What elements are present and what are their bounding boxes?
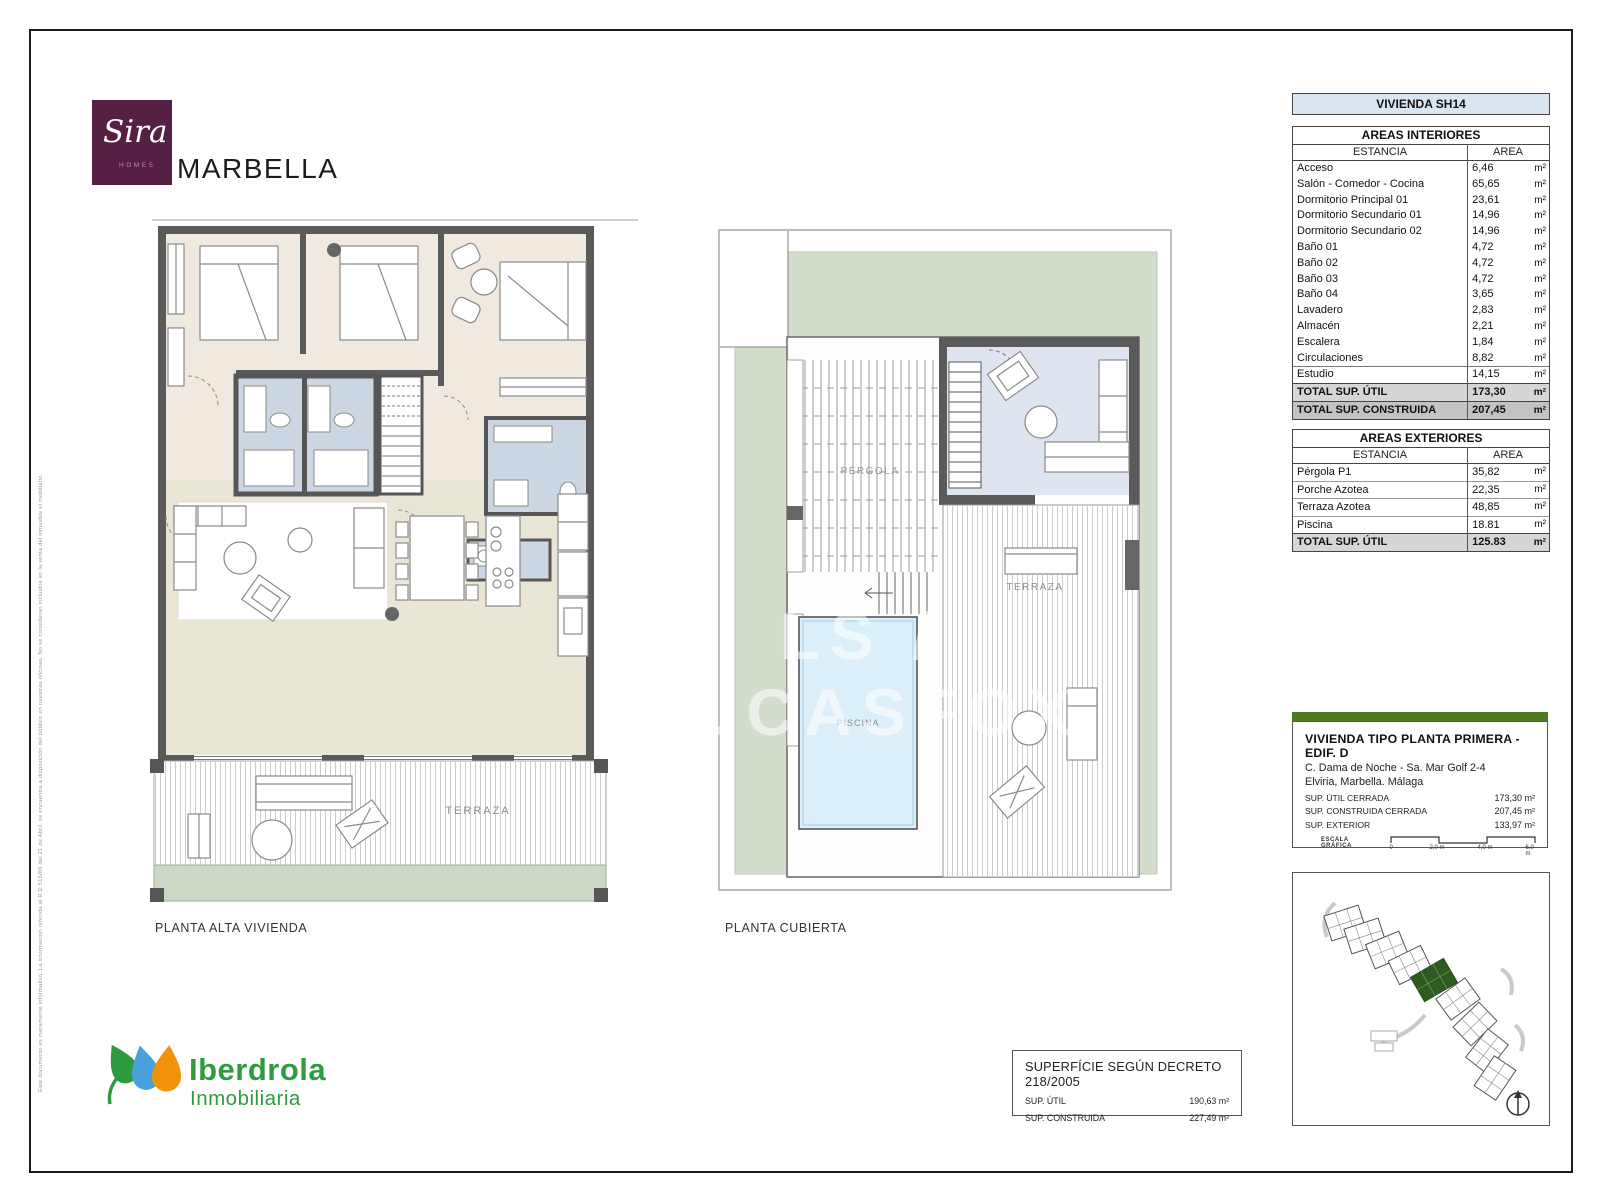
room-area: 4,72 <box>1467 272 1516 288</box>
decreto-row: SUP. ÚTIL 190,63 m² <box>1025 1096 1229 1106</box>
room-unit: m² <box>1516 256 1549 272</box>
table-row: Baño 03 4,72 m² <box>1293 272 1549 288</box>
table-header: ESTANCIA AREA <box>1293 145 1549 161</box>
scale-bar: 0 2,0 m 4,0 m 6,0 m <box>1387 835 1535 853</box>
room-area: 14,15 <box>1467 367 1516 383</box>
room-area: 14,96 <box>1467 208 1516 224</box>
decreto-box: SUPERFÍCIE SEGÚN DECRETO 218/2005 SUP. Ú… <box>1012 1050 1242 1116</box>
col-estancia: ESTANCIA <box>1293 145 1467 160</box>
room-name: Pérgola P1 <box>1293 464 1467 481</box>
table-row: Terraza Azotea 48,85 m² <box>1293 499 1549 517</box>
room-name: Dormitorio Secundario 02 <box>1293 224 1467 240</box>
right-plan-label: PLANTA CUBIERTA <box>725 921 847 935</box>
table-row: Baño 01 4,72 m² <box>1293 240 1549 256</box>
room-area: 2,21 <box>1467 319 1516 335</box>
total-construida-row: TOTAL SUP. CONSTRUIDA 207,45 m² <box>1293 401 1549 419</box>
iberdrola-name: Iberdrola <box>189 1052 326 1087</box>
room-unit: m² <box>1516 335 1549 351</box>
room-name: Dormitorio Secundario 01 <box>1293 208 1467 224</box>
room-name: Dormitorio Principal 01 <box>1293 193 1467 209</box>
room-name: Terraza Azotea <box>1293 499 1467 516</box>
info-title: VIVIENDA TIPO PLANTA PRIMERA - EDIF. D <box>1305 732 1535 760</box>
room-name: Baño 01 <box>1293 240 1467 256</box>
left-plan-label: PLANTA ALTA VIVIENDA <box>155 921 307 935</box>
floor-plan-planta-alta: TERRAZA <box>148 210 642 910</box>
room-unit: m² <box>1516 351 1549 367</box>
table-row: Salón - Comedor - Cocina 65,65 m² <box>1293 177 1549 193</box>
sira-logo-script: Sira <box>103 114 167 150</box>
total-util-row: TOTAL SUP. ÚTIL 125.83 m² <box>1293 533 1549 551</box>
room-name: Piscina <box>1293 517 1467 534</box>
room-area: 8,82 <box>1467 351 1516 367</box>
table-row: Lavadero 2,83 m² <box>1293 303 1549 319</box>
table-title: AREAS EXTERIORES <box>1293 430 1549 448</box>
room-area: 23,61 <box>1467 193 1516 209</box>
pergola: PÉRGOLA <box>801 360 939 572</box>
sira-logo-sub: HOMES <box>119 162 155 169</box>
table-row: Escalera 1,84 m² <box>1293 335 1549 351</box>
room-area: 35,82 <box>1467 464 1516 481</box>
room-area: 48,85 <box>1467 499 1516 516</box>
room-area: 6,46 <box>1467 161 1516 177</box>
room-unit: m² <box>1516 177 1549 193</box>
info-row: SUP. ÚTIL CERRADA 173,30 m² <box>1305 793 1535 803</box>
table-body: Acceso 6,46 m² Salón - Comedor - Cocina … <box>1293 161 1549 383</box>
room-unit: m² <box>1516 482 1549 499</box>
room-name: Lavadero <box>1293 303 1467 319</box>
window-glazing <box>194 755 572 761</box>
pergola-label: PÉRGOLA <box>841 464 900 477</box>
pool: PISCINA <box>799 617 917 829</box>
room-name: Porche Azotea <box>1293 482 1467 499</box>
room-unit: m² <box>1516 319 1549 335</box>
studio <box>939 337 1139 505</box>
sira-homes-logo: Sira HOMES <box>92 100 172 185</box>
room-unit: m² <box>1516 272 1549 288</box>
room-name: Baño 02 <box>1293 256 1467 272</box>
table-row: Porche Azotea 22,35 m² <box>1293 482 1549 500</box>
roof-terrace: TERRAZA <box>943 505 1139 877</box>
room-name: Baño 04 <box>1293 287 1467 303</box>
roof-terrace-label: TERRAZA <box>1006 582 1063 593</box>
info-row: SUP. EXTERIOR 133,97 m² <box>1305 820 1535 830</box>
site-buildings <box>1324 905 1516 1100</box>
room-unit: m² <box>1516 287 1549 303</box>
decreto-row: SUP. CONSTRUIDA 227,49 m² <box>1025 1113 1229 1123</box>
iberdrola-division: Inmobiliaria <box>190 1087 301 1110</box>
table-header: ESTANCIA AREA <box>1293 448 1549 464</box>
room-unit: m² <box>1516 367 1549 383</box>
table-title: AREAS INTERIORES <box>1293 127 1549 145</box>
site-plan-box <box>1292 872 1550 1126</box>
column-dot <box>327 243 341 257</box>
iberdrola-logo: Iberdrola Inmobiliaria <box>103 1020 333 1117</box>
room-unit: m² <box>1516 161 1549 177</box>
info-box-accent-bar <box>1292 712 1548 721</box>
table-row: Dormitorio Principal 01 23,61 m² <box>1293 193 1549 209</box>
areas-interiores-table: AREAS INTERIORES ESTANCIA AREA Acceso 6,… <box>1292 126 1550 420</box>
unit-title: VIVIENDA SH14 <box>1292 93 1550 115</box>
room-area: 1,84 <box>1467 335 1516 351</box>
table-row: Baño 02 4,72 m² <box>1293 256 1549 272</box>
iberdrola-mark-icon <box>103 1039 184 1104</box>
studio-staircase <box>949 362 981 488</box>
room-unit: m² <box>1516 464 1549 481</box>
room-name: Estudio <box>1293 367 1467 383</box>
room-area: 22,35 <box>1467 482 1516 499</box>
floor-plan-planta-cubierta: PÉRGOLA <box>705 210 1185 910</box>
table-row: Estudio 14,15 m² <box>1293 366 1549 383</box>
room-area: 14,96 <box>1467 224 1516 240</box>
room-name: Almacén <box>1293 319 1467 335</box>
room-unit: m² <box>1516 193 1549 209</box>
table-row: Piscina 18.81 m² <box>1293 517 1549 534</box>
areas-exteriores-table: AREAS EXTERIORES ESTANCIA AREA Pérgola P… <box>1292 429 1550 552</box>
staircase <box>380 376 422 494</box>
total-util-row: TOTAL SUP. ÚTIL 173,30 m² <box>1293 383 1549 401</box>
room-unit: m² <box>1516 303 1549 319</box>
room-area: 4,72 <box>1467 256 1516 272</box>
legal-disclaimer: Este documento es meramente informativo.… <box>38 474 44 1093</box>
room-unit: m² <box>1516 517 1549 534</box>
decreto-title: SUPERFÍCIE SEGÚN DECRETO 218/2005 <box>1025 1059 1229 1089</box>
room-name: Salón - Comedor - Cocina <box>1293 177 1467 193</box>
column-dot-2 <box>385 607 399 621</box>
col-area: AREA <box>1467 145 1549 160</box>
terrace: TERRAZA <box>154 761 606 901</box>
graphic-scale: ESCALA GRÁFICA 0 2,0 m 4,0 m 6,0 m <box>1321 835 1535 853</box>
scale-label: ESCALA GRÁFICA <box>1321 837 1377 853</box>
north-compass-icon <box>1507 1090 1529 1115</box>
site-plan <box>1293 873 1547 1123</box>
room-area: 4,72 <box>1467 240 1516 256</box>
room-name: Baño 03 <box>1293 272 1467 288</box>
table-row: Dormitorio Secundario 01 14,96 m² <box>1293 208 1549 224</box>
info-address-1: C. Dama de Noche - Sa. Mar Golf 2-4 <box>1305 762 1535 776</box>
room-name: Circulaciones <box>1293 351 1467 367</box>
table-row: Almacén 2,21 m² <box>1293 319 1549 335</box>
room-unit: m² <box>1516 208 1549 224</box>
pool-label: PISCINA <box>836 718 879 728</box>
terrace-label: TERRAZA <box>445 805 510 817</box>
room-area: 18.81 <box>1467 517 1516 534</box>
unit-info-box: VIVIENDA TIPO PLANTA PRIMERA - EDIF. D C… <box>1292 721 1548 848</box>
info-row: SUP. CONSTRUIDA CERRADA 207,45 m² <box>1305 806 1535 816</box>
room-area: 65,65 <box>1467 177 1516 193</box>
table-row: Circulaciones 8,82 m² <box>1293 351 1549 367</box>
plan-sheet: Este documento es meramente informativo.… <box>0 0 1600 1200</box>
room-unit: m² <box>1516 224 1549 240</box>
room-name: Acceso <box>1293 161 1467 177</box>
table-row: Acceso 6,46 m² <box>1293 161 1549 177</box>
room-area: 2,83 <box>1467 303 1516 319</box>
info-address-2: Elviria, Marbella. Málaga <box>1305 776 1535 790</box>
room-unit: m² <box>1516 499 1549 516</box>
table-row: Dormitorio Secundario 02 14,96 m² <box>1293 224 1549 240</box>
col-estancia: ESTANCIA <box>1293 448 1467 463</box>
project-city: MARBELLA <box>177 153 338 185</box>
room-name: Escalera <box>1293 335 1467 351</box>
room-area: 3,65 <box>1467 287 1516 303</box>
table-row: Pérgola P1 35,82 m² <box>1293 464 1549 482</box>
room-unit: m² <box>1516 240 1549 256</box>
table-row: Baño 04 3,65 m² <box>1293 287 1549 303</box>
col-area: AREA <box>1467 448 1549 463</box>
table-body: Pérgola P1 35,82 m² Porche Azotea 22,35 … <box>1293 464 1549 533</box>
